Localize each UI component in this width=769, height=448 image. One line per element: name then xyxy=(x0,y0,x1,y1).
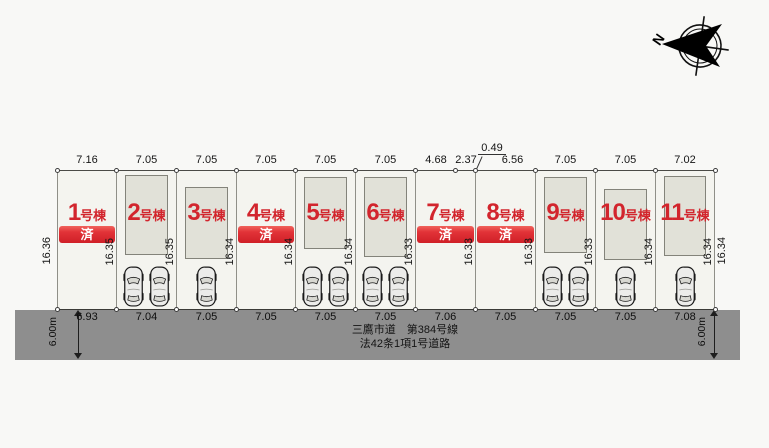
parking xyxy=(177,265,236,308)
side-dimension: 16.34 xyxy=(225,238,236,266)
boundary-tick xyxy=(593,307,598,312)
top-dimension: 7.02 xyxy=(656,154,714,166)
compass-label: N xyxy=(650,31,668,48)
car-icon xyxy=(302,265,323,308)
lot-10: 7.05 10号棟 16.34 7.05 xyxy=(595,170,655,310)
site-plan: N 三鷹市道 第384号線 法42条1項1号道路 6.00m 6.00m 16.… xyxy=(0,0,769,448)
top-dimension: 2.37 xyxy=(454,154,478,166)
lot-8: 0.49 6.56 8号棟 済 16.33 7.05 xyxy=(475,170,535,310)
boundary-tick xyxy=(234,168,239,173)
bottom-dimension: 7.08 xyxy=(656,311,714,323)
lot-label: 6号棟 xyxy=(356,199,415,227)
boundary-tick xyxy=(114,307,119,312)
lot-6: 7.05 6号棟 16.33 7.05 xyxy=(355,170,415,310)
arrow-down-icon xyxy=(74,353,82,359)
side-dimension: 16.34 xyxy=(284,238,295,266)
boundary-tick xyxy=(174,307,179,312)
lot-3: 7.05 3号棟 16.34 7.05 xyxy=(176,170,236,310)
boundary-tick xyxy=(174,168,179,173)
lot-5: 7.05 5号棟 16.34 7.05 xyxy=(295,170,355,310)
parking xyxy=(296,265,355,308)
parking xyxy=(596,265,655,308)
car-icon xyxy=(388,265,409,308)
boundary-tick xyxy=(293,168,298,173)
lot-4: 7.05 4号棟 済 16.34 7.05 xyxy=(236,170,295,310)
bottom-dimension: 7.05 xyxy=(356,311,415,323)
road-name: 三鷹市道 第384号線 xyxy=(295,323,515,337)
car-icon xyxy=(542,265,563,308)
boundary-tick xyxy=(713,168,718,173)
side-dimension: 16.34 xyxy=(703,238,714,266)
lot-9: 7.05 9号棟 16.33 7.05 xyxy=(535,170,595,310)
parking xyxy=(117,265,176,308)
side-dimension: 16.33 xyxy=(404,238,415,266)
lot-label: 3号棟 xyxy=(177,199,236,227)
top-dimension: 7.05 xyxy=(536,154,595,166)
side-dimension: 16.33 xyxy=(524,238,535,266)
boundary-tick xyxy=(453,168,458,173)
top-dimension: 6.56 xyxy=(490,154,535,166)
car-icon xyxy=(196,265,217,308)
side-dimension: 16.34 xyxy=(644,238,655,266)
boundary-tick xyxy=(473,168,478,173)
bottom-dimension: 7.05 xyxy=(476,311,535,323)
outer-dimension-right: 16.34 xyxy=(717,237,728,265)
bottom-dimension: 7.04 xyxy=(117,311,176,323)
side-dimension: 16.34 xyxy=(344,238,355,266)
outer-dimension-left: 16.36 xyxy=(42,237,53,265)
top-dimension: 7.05 xyxy=(117,154,176,166)
boundary-tick xyxy=(293,307,298,312)
road-width-line-right xyxy=(714,313,715,355)
car-icon xyxy=(328,265,349,308)
boundary-tick xyxy=(55,168,60,173)
car-icon xyxy=(568,265,589,308)
lot-11: 7.02 11号棟 16.34 7.08 xyxy=(655,170,715,310)
boundary-tick xyxy=(593,168,598,173)
lot-label: 8号棟 xyxy=(476,199,535,227)
lot-label: 2号棟 xyxy=(117,199,176,227)
road-label: 三鷹市道 第384号線 法42条1項1号道路 xyxy=(295,323,515,351)
side-dimension: 16.33 xyxy=(464,238,475,266)
boundary-tick xyxy=(473,307,478,312)
boundary-tick xyxy=(234,307,239,312)
bottom-dimension: 6.93 xyxy=(58,311,116,323)
top-dimension: 4.68 xyxy=(416,154,456,166)
side-dimension: 16.35 xyxy=(165,238,176,266)
top-dimension: 7.05 xyxy=(177,154,236,166)
side-dimension: 16.33 xyxy=(584,238,595,266)
parking xyxy=(356,265,415,308)
front-boundary-line xyxy=(57,170,716,171)
bottom-dimension: 7.05 xyxy=(237,311,295,323)
boundary-tick xyxy=(353,168,358,173)
top-dimension: 7.16 xyxy=(58,154,116,166)
lot-7: 4.68 2.37 7号棟 済 16.33 7.06 xyxy=(415,170,475,310)
boundary-tick xyxy=(533,168,538,173)
boundary-tick xyxy=(353,307,358,312)
lot-label: 7号棟 xyxy=(416,199,475,227)
road-classification: 法42条1項1号道路 xyxy=(295,337,515,351)
boundary-tick xyxy=(413,307,418,312)
boundary-tick xyxy=(413,168,418,173)
plan-area: N 三鷹市道 第384号線 法42条1項1号道路 6.00m 6.00m 16.… xyxy=(0,0,769,448)
top-dimension: 7.05 xyxy=(237,154,295,166)
lot-label: 10号棟 xyxy=(596,199,655,227)
bottom-dimension: 7.05 xyxy=(296,311,355,323)
parking xyxy=(656,265,714,308)
car-icon xyxy=(123,265,144,308)
car-icon xyxy=(149,265,170,308)
lot-label: 4号棟 xyxy=(237,199,295,227)
boundary-tick xyxy=(653,168,658,173)
boundary-tick xyxy=(653,307,658,312)
top-dimension: 7.05 xyxy=(596,154,655,166)
top-dimension: 7.05 xyxy=(296,154,355,166)
boundary-tick xyxy=(713,307,718,312)
boundary-tick xyxy=(55,307,60,312)
boundary-tick xyxy=(114,168,119,173)
lot-label: 5号棟 xyxy=(296,199,355,227)
bottom-dimension: 7.05 xyxy=(536,311,595,323)
lot-label: 9号棟 xyxy=(536,199,595,227)
lot-1: 7.16 1号棟 済 16.35 6.93 xyxy=(57,170,116,310)
arrow-down-icon xyxy=(710,353,718,359)
lot-label: 1号棟 xyxy=(58,199,116,227)
road-boundary-line xyxy=(57,309,716,310)
car-icon xyxy=(615,265,636,308)
car-icon xyxy=(362,265,383,308)
bottom-dimension: 7.05 xyxy=(596,311,655,323)
boundary-tick xyxy=(533,307,538,312)
lot-2: 7.05 2号棟 16.35 7.04 xyxy=(116,170,176,310)
car-icon xyxy=(675,265,696,308)
parking xyxy=(536,265,595,308)
lot-label: 11号棟 xyxy=(656,199,714,227)
top-dimension: 7.05 xyxy=(356,154,415,166)
compass-north-icon: N xyxy=(650,8,746,84)
road-width-left: 6.00m xyxy=(48,317,59,346)
bottom-dimension: 7.06 xyxy=(416,311,475,323)
side-dimension: 16.35 xyxy=(105,238,116,266)
bottom-dimension: 7.05 xyxy=(177,311,236,323)
